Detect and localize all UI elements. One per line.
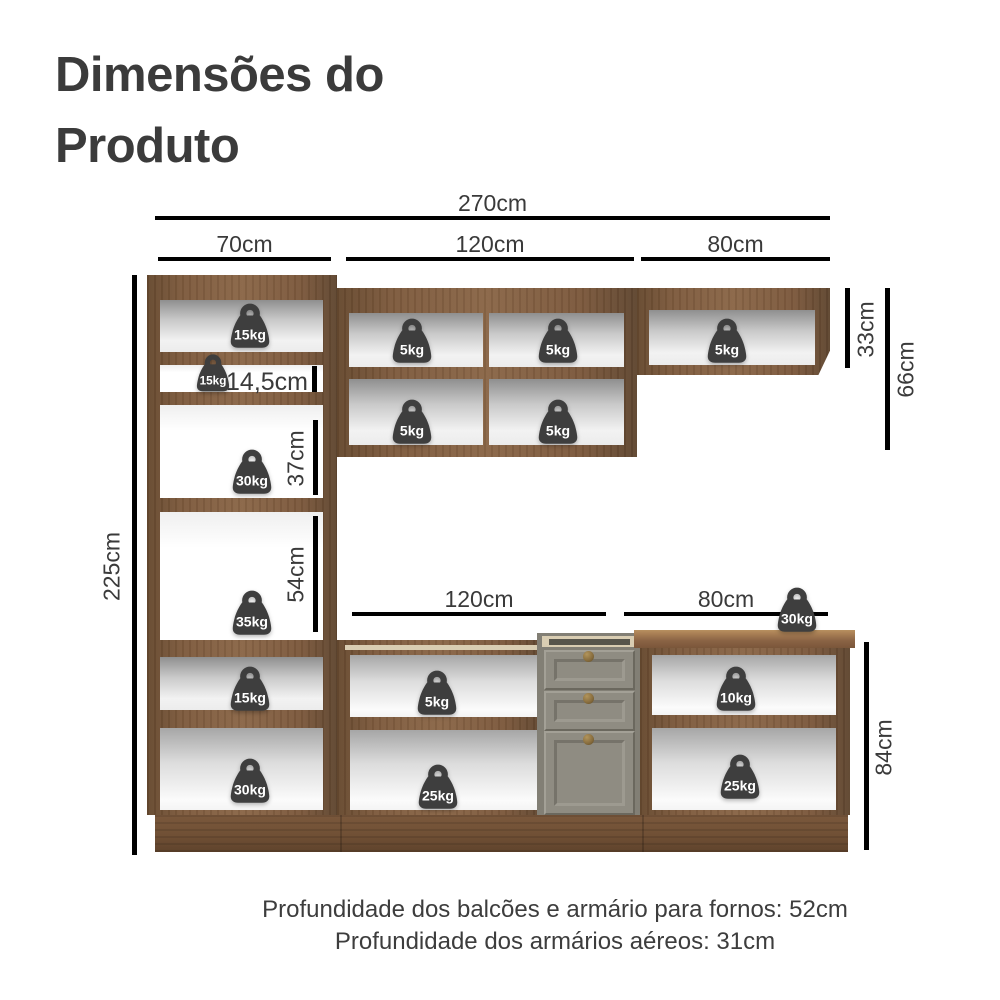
weight-badge: 30kg: [226, 449, 278, 497]
weight-icon: 30kg: [226, 449, 278, 497]
drawer-1-knob: [583, 651, 594, 662]
dim-base-middle-label: 120cm: [352, 586, 606, 613]
svg-text:15kg: 15kg: [234, 326, 266, 342]
dim-middle-width-line: [346, 257, 634, 261]
svg-text:10kg: 10kg: [720, 689, 752, 705]
dim-base-middle-line: [352, 612, 606, 616]
depth-note-wall-cabinets: Profundidade dos armários aéreos: 31cm: [155, 926, 955, 958]
depth-note-counters: Profundidade dos balcões e armário para …: [155, 894, 955, 926]
svg-text:25kg: 25kg: [724, 777, 756, 793]
dim-33-line: [845, 288, 850, 368]
depth-notes: Profundidade dos balcões e armário para …: [155, 894, 955, 957]
dim-left-width-line: [158, 257, 331, 261]
dim-54-line: [313, 516, 318, 632]
plinth-seam-right: [642, 815, 644, 852]
weight-icon: 15kg: [224, 303, 276, 351]
svg-text:25kg: 25kg: [422, 787, 454, 803]
weight-icon: 5kg: [701, 318, 753, 366]
svg-text:30kg: 30kg: [236, 472, 268, 488]
svg-text:30kg: 30kg: [781, 610, 813, 626]
weight-icon: 5kg: [386, 399, 438, 447]
dim-54-label: 54cm: [283, 535, 310, 615]
weight-badge: 15kg: [224, 666, 276, 714]
dim-total-height-label: 225cm: [99, 527, 126, 607]
dim-84-label: 84cm: [871, 708, 898, 788]
kitchen-dimensions-diagram: Dimensões do Produto 270cm 70cm 120cm 80…: [0, 0, 1000, 1000]
base-cabinet-120-inner-frame: [345, 645, 537, 650]
weight-badge: 5kg: [701, 318, 753, 366]
svg-text:35kg: 35kg: [236, 613, 268, 629]
dim-84-line: [864, 642, 869, 850]
dim-left-width-label: 70cm: [158, 231, 331, 258]
dim-37-label: 37cm: [283, 419, 310, 499]
dim-middle-width-label: 120cm: [346, 231, 634, 258]
weight-badge: 5kg: [532, 318, 584, 366]
svg-text:15kg: 15kg: [200, 374, 227, 387]
svg-text:5kg: 5kg: [715, 341, 739, 357]
dim-37-line: [313, 420, 318, 495]
weight-badge: 5kg: [411, 670, 463, 718]
weight-badge: 15kg: [191, 354, 235, 394]
dim-66-line: [885, 288, 890, 450]
plinth-seam-left: [340, 815, 342, 852]
weight-badge: 25kg: [412, 764, 464, 812]
weight-badge: 30kg: [224, 758, 276, 806]
weight-badge: 25kg: [714, 754, 766, 802]
dim-33-label: 33cm: [853, 290, 880, 370]
weight-badge: 5kg: [386, 399, 438, 447]
dim-niche-line: [312, 366, 317, 392]
weight-icon: 5kg: [532, 399, 584, 447]
weight-badge: 30kg: [771, 587, 823, 635]
dim-total-height-line: [132, 275, 137, 855]
drawer-unit-top-opening: [549, 639, 630, 645]
dim-right-width-line: [641, 257, 830, 261]
svg-text:5kg: 5kg: [425, 693, 449, 709]
svg-text:30kg: 30kg: [234, 781, 266, 797]
drawer-3-knob: [583, 734, 594, 745]
weight-badge: 5kg: [386, 318, 438, 366]
svg-text:5kg: 5kg: [400, 341, 424, 357]
drawer-unit: [537, 633, 642, 815]
weight-icon: 25kg: [412, 764, 464, 812]
dim-66-label: 66cm: [893, 330, 920, 410]
weight-icon: 5kg: [411, 670, 463, 718]
weight-badge: 10kg: [710, 666, 762, 714]
weight-badge: 5kg: [532, 399, 584, 447]
weight-icon: 25kg: [714, 754, 766, 802]
weight-icon: 15kg: [224, 666, 276, 714]
drawer-1-panel: [554, 659, 625, 681]
svg-text:5kg: 5kg: [400, 422, 424, 438]
dim-total-width-label: 270cm: [155, 190, 830, 217]
weight-badge: 35kg: [226, 590, 278, 638]
drawer-2-knob: [583, 693, 594, 704]
svg-text:15kg: 15kg: [234, 689, 266, 705]
svg-text:5kg: 5kg: [546, 422, 570, 438]
dim-right-width-label: 80cm: [641, 231, 830, 258]
weight-icon: 5kg: [386, 318, 438, 366]
weight-badge: 15kg: [224, 303, 276, 351]
weight-icon: 15kg: [191, 354, 235, 394]
weight-icon: 30kg: [224, 758, 276, 806]
svg-text:5kg: 5kg: [546, 341, 570, 357]
drawer-3-panel: [554, 740, 625, 806]
dim-total-width-line: [155, 216, 830, 220]
plinth: [155, 815, 848, 852]
weight-icon: 10kg: [710, 666, 762, 714]
weight-icon: 5kg: [532, 318, 584, 366]
page-title: Dimensões do Produto: [55, 40, 485, 182]
weight-icon: 35kg: [226, 590, 278, 638]
weight-icon: 30kg: [771, 587, 823, 635]
drawer-unit-top-inset: [542, 636, 637, 647]
